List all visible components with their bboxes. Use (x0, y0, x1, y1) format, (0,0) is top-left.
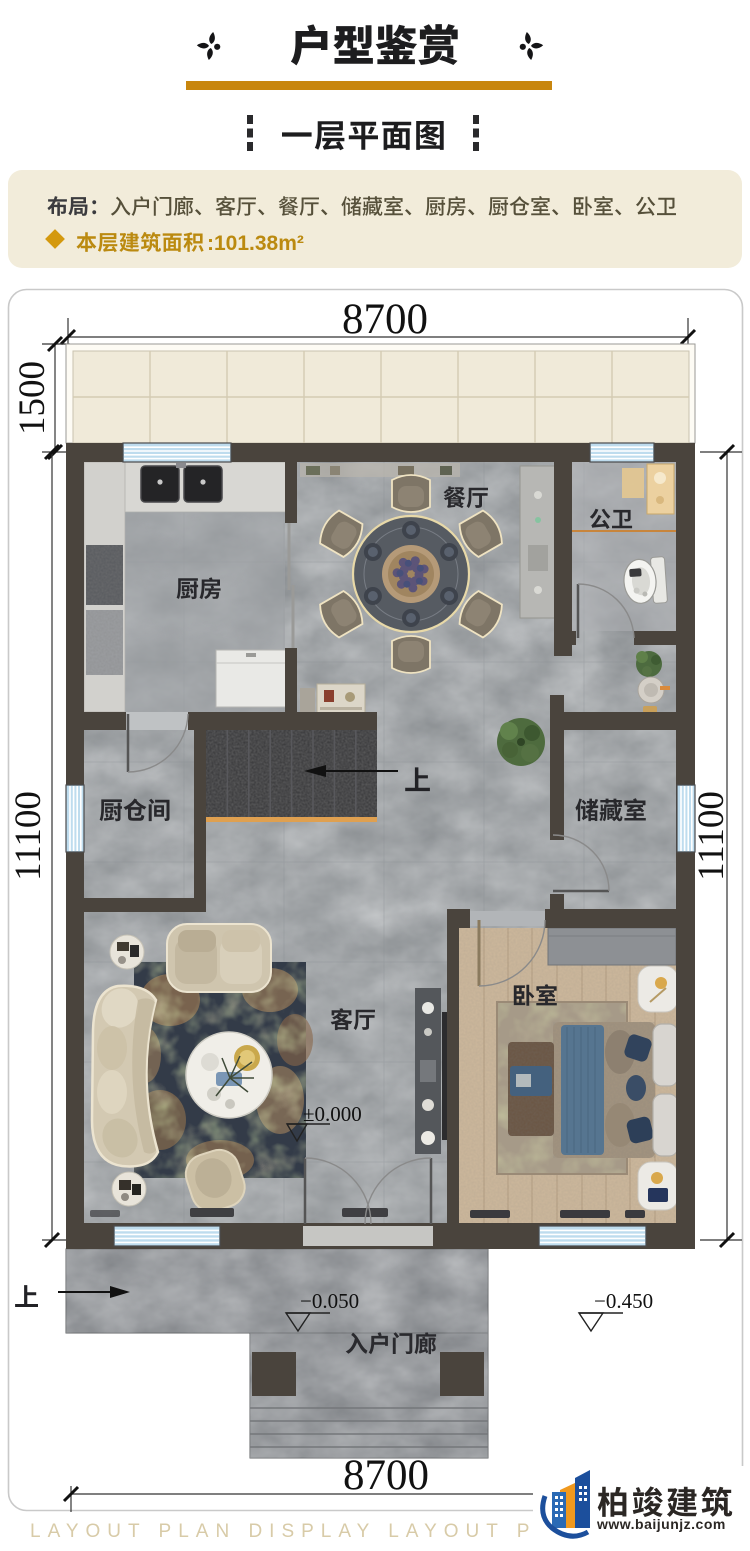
svg-text:www.baijunjz.com: www.baijunjz.com (596, 1516, 726, 1532)
svg-text:8700: 8700 (342, 296, 428, 343)
svg-text::101.38m²: :101.38m² (207, 232, 304, 255)
svg-text:8700: 8700 (343, 1452, 429, 1499)
svg-text:−0.050: −0.050 (300, 1289, 359, 1313)
svg-text:11100: 11100 (8, 791, 49, 881)
svg-text:1500: 1500 (12, 361, 53, 435)
svg-text:±0.000: ±0.000 (303, 1102, 362, 1126)
svg-text:11100: 11100 (691, 791, 732, 881)
svg-text:−0.450: −0.450 (594, 1289, 653, 1313)
